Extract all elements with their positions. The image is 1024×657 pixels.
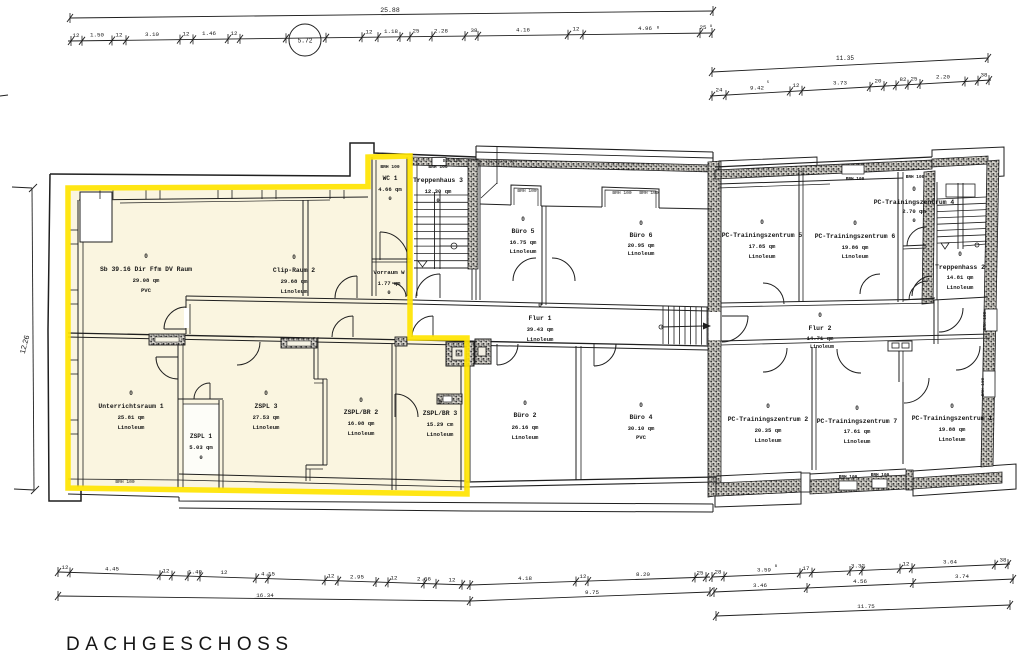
svg-text:12: 12 <box>903 561 910 568</box>
svg-text:Linoleum: Linoleum <box>628 250 655 257</box>
svg-text:Linoleum: Linoleum <box>348 430 375 437</box>
svg-text:16.75 qm: 16.75 qm <box>510 239 537 246</box>
svg-text:15.29 cm: 15.29 cm <box>427 421 454 428</box>
svg-text:0: 0 <box>639 402 643 409</box>
svg-text:0: 0 <box>639 220 643 227</box>
svg-text:0: 0 <box>438 399 442 406</box>
svg-text:39.43 qm: 39.43 qm <box>527 326 554 333</box>
svg-text:4.45: 4.45 <box>105 566 119 573</box>
svg-text:Linoleum: Linoleum <box>281 288 308 295</box>
svg-text:Linoleum: Linoleum <box>118 424 145 431</box>
svg-text:Linoleum: Linoleum <box>939 436 966 443</box>
svg-text:WC 1: WC 1 <box>383 175 398 182</box>
svg-text:19.88 qm: 19.88 qm <box>939 426 966 433</box>
svg-text:82: 82 <box>900 76 907 83</box>
svg-text:BRH 100: BRH 100 <box>871 473 890 478</box>
svg-text:12: 12 <box>449 576 456 583</box>
svg-text:Vorraum W: Vorraum W <box>373 269 405 276</box>
svg-text:38: 38 <box>981 71 988 78</box>
svg-text:0: 0 <box>950 403 954 410</box>
svg-text:2.66: 2.66 <box>417 576 431 583</box>
svg-text:2.28: 2.28 <box>434 27 448 34</box>
svg-text:4.18: 4.18 <box>518 575 532 582</box>
svg-text:12: 12 <box>328 573 335 580</box>
svg-text:12: 12 <box>62 564 69 571</box>
svg-text:Linoleum: Linoleum <box>253 424 280 431</box>
svg-text:12.30 qm: 12.30 qm <box>425 188 452 195</box>
svg-text:1.77 qm: 1.77 qm <box>378 281 401 287</box>
svg-text:Büro 2: Büro 2 <box>513 412 536 419</box>
svg-text:17: 17 <box>803 565 810 572</box>
svg-text:0: 0 <box>523 400 527 407</box>
svg-text:5.72: 5.72 <box>298 38 313 45</box>
svg-text:BRH 100: BRH 100 <box>612 190 632 196</box>
svg-text:4.66 qm: 4.66 qm <box>378 186 402 193</box>
svg-text:12: 12 <box>73 32 80 39</box>
svg-text:0: 0 <box>855 405 859 412</box>
svg-text:3.32: 3.32 <box>851 563 865 570</box>
svg-text:BRH 100: BRH 100 <box>981 377 986 396</box>
svg-text:ZSPL 1: ZSPL 1 <box>190 433 213 440</box>
svg-text:2.20: 2.20 <box>936 74 950 81</box>
svg-text:4.16: 4.16 <box>516 26 530 33</box>
svg-text:12: 12 <box>231 30 238 37</box>
svg-text:16.34: 16.34 <box>256 592 274 599</box>
svg-text:25: 25 <box>911 75 918 82</box>
svg-text:BRH 100: BRH 100 <box>846 177 865 182</box>
svg-text:BRH 100: BRH 100 <box>639 190 659 196</box>
svg-text:PVC: PVC <box>636 434 647 441</box>
svg-text:17.85 qm: 17.85 qm <box>749 243 776 250</box>
svg-text:0: 0 <box>853 220 857 227</box>
svg-text:0: 0 <box>129 390 133 397</box>
svg-text:29.68 qm: 29.68 qm <box>281 278 308 285</box>
svg-text:PC-Trainingszentrum 5: PC-Trainingszentrum 5 <box>722 232 803 239</box>
svg-text:0: 0 <box>264 390 268 397</box>
svg-text:38: 38 <box>471 27 478 34</box>
svg-text:BRH 100: BRH 100 <box>115 479 135 485</box>
svg-text:25: 25 <box>697 569 704 576</box>
svg-text:150/98/03-76: 150/98/03-76 <box>486 160 515 165</box>
svg-text:0: 0 <box>521 216 525 223</box>
svg-text:Linoleum: Linoleum <box>427 431 454 438</box>
svg-text:5.03 qm: 5.03 qm <box>189 444 213 451</box>
svg-text:29.08 qm: 29.08 qm <box>133 277 160 284</box>
svg-text:PC-Trainingszentrum 1: PC-Trainingszentrum 1 <box>912 415 993 422</box>
svg-text:27.53 qm: 27.53 qm <box>253 414 280 421</box>
svg-text:Treppenhass 2: Treppenhass 2 <box>935 264 985 271</box>
svg-text:12: 12 <box>221 569 228 576</box>
svg-text:12: 12 <box>391 575 398 582</box>
svg-text:BRH 100: BRH 100 <box>428 164 448 170</box>
svg-text:Linoleum: Linoleum <box>749 253 776 260</box>
svg-text:0: 0 <box>538 302 542 309</box>
svg-text:8.20: 8.20 <box>636 571 650 578</box>
svg-text:Linoleum: Linoleum <box>755 437 782 444</box>
svg-text:1.46: 1.46 <box>202 30 216 37</box>
svg-text:0: 0 <box>958 251 962 258</box>
svg-text:0: 0 <box>766 403 770 410</box>
svg-text:PVC: PVC <box>141 287 152 294</box>
svg-text:0: 0 <box>387 290 390 296</box>
svg-text:9.42: 9.42 <box>750 84 764 91</box>
svg-text:PC-Trainingszentrum 7: PC-Trainingszentrum 7 <box>817 418 898 425</box>
svg-text:14.81 qm: 14.81 qm <box>947 274 974 281</box>
svg-text:25.81 qm: 25.81 qm <box>118 414 145 421</box>
svg-text:2.70 qm: 2.70 qm <box>902 208 926 215</box>
svg-text:3.46: 3.46 <box>753 582 767 589</box>
svg-text:9.75: 9.75 <box>585 589 599 596</box>
svg-text:0: 0 <box>818 312 822 319</box>
svg-text:4.15: 4.15 <box>261 571 275 578</box>
svg-text:Linoleum: Linoleum <box>842 253 869 260</box>
svg-text:DACHGESCHOSS: DACHGESCHOSS <box>66 634 294 655</box>
svg-text:24: 24 <box>716 87 723 94</box>
svg-text:Büro 6: Büro 6 <box>629 232 652 239</box>
svg-text:PC-Trainingszentrum 2: PC-Trainingszentrum 2 <box>728 416 809 423</box>
svg-text:12: 12 <box>116 31 123 38</box>
svg-text:14.71 qm: 14.71 qm <box>807 335 834 342</box>
svg-text:0: 0 <box>912 186 916 193</box>
svg-text:Flur 1: Flur 1 <box>528 315 551 322</box>
svg-text:12: 12 <box>580 573 587 580</box>
svg-text:Unterrichtsraum 1: Unterrichtsraum 1 <box>98 403 163 410</box>
svg-text:BRH 100: BRH 100 <box>443 159 462 164</box>
svg-text:PC-Trainingszentrum 6: PC-Trainingszentrum 6 <box>815 233 896 240</box>
svg-text:Treppenhaus 3: Treppenhaus 3 <box>413 177 463 184</box>
svg-text:0: 0 <box>292 254 296 261</box>
svg-text:25.88: 25.88 <box>380 7 400 14</box>
svg-text:ZSPL/BR 2: ZSPL/BR 2 <box>344 409 379 416</box>
svg-text:12: 12 <box>366 28 373 35</box>
svg-text:20: 20 <box>875 77 882 84</box>
svg-text:4.96: 4.96 <box>638 25 652 32</box>
svg-text:Clip-Raum 2: Clip-Raum 2 <box>273 267 315 274</box>
svg-text:12: 12 <box>163 567 170 574</box>
svg-text:11.75: 11.75 <box>857 603 875 610</box>
svg-text:Büro 4: Büro 4 <box>629 414 652 421</box>
svg-text:Sb 39.16 Dir Ffm DV Raum: Sb 39.16 Dir Ffm DV Raum <box>100 266 192 273</box>
svg-text:3.59: 3.59 <box>757 567 771 574</box>
svg-text:1.50: 1.50 <box>90 32 104 39</box>
svg-text:25: 25 <box>700 24 707 31</box>
svg-text:20.95 qm: 20.95 qm <box>628 242 655 249</box>
svg-text:1.18: 1.18 <box>384 28 398 35</box>
svg-text:3.74: 3.74 <box>955 573 969 580</box>
svg-text:12: 12 <box>793 82 800 89</box>
svg-text:12: 12 <box>183 31 190 38</box>
svg-text:Linoleum: Linoleum <box>844 438 871 445</box>
svg-text:Büro 5: Büro 5 <box>511 228 534 235</box>
svg-text:20.35 qm: 20.35 qm <box>755 427 782 434</box>
svg-text:38: 38 <box>1000 556 1007 563</box>
svg-text:3.73: 3.73 <box>833 80 847 87</box>
svg-text:12: 12 <box>573 26 580 33</box>
svg-text:16.08 qm: 16.08 qm <box>348 420 375 427</box>
svg-text:BRH 100: BRH 100 <box>380 164 400 170</box>
svg-text:17.61 qm: 17.61 qm <box>844 428 871 435</box>
svg-text:Linoleum: Linoleum <box>510 248 537 255</box>
svg-text:11.35: 11.35 <box>836 55 854 62</box>
svg-text:Linoleum: Linoleum <box>527 336 554 343</box>
svg-text:4.56: 4.56 <box>853 578 867 585</box>
svg-text:Flur 2: Flur 2 <box>808 325 831 332</box>
svg-text:26.16 qm: 26.16 qm <box>512 424 539 431</box>
svg-text:BRH 100: BRH 100 <box>906 175 925 180</box>
svg-text:0: 0 <box>144 253 148 260</box>
svg-text:PC-Trainingszentrum 4: PC-Trainingszentrum 4 <box>874 199 955 206</box>
svg-text:BRH 100: BRH 100 <box>517 188 537 194</box>
svg-text:BRH 100: BRH 100 <box>983 311 988 330</box>
svg-text:2.95: 2.95 <box>350 573 364 580</box>
svg-text:30.10 qm: 30.10 qm <box>628 425 655 432</box>
svg-text:3.64: 3.64 <box>943 559 957 566</box>
svg-text:1.49: 1.49 <box>188 568 202 575</box>
svg-text:19.86 qm: 19.86 qm <box>842 244 869 251</box>
svg-text:Linoleum: Linoleum <box>512 434 539 441</box>
svg-text:ZSPL 3: ZSPL 3 <box>254 403 277 410</box>
svg-text:ZSPL/BR 3: ZSPL/BR 3 <box>423 410 458 417</box>
svg-text:Linoleum: Linoleum <box>810 344 834 350</box>
svg-text:25: 25 <box>413 28 420 35</box>
svg-text:3.10: 3.10 <box>145 31 159 38</box>
svg-text:Linoleum: Linoleum <box>947 284 974 291</box>
svg-text:0: 0 <box>359 397 363 404</box>
svg-text:28: 28 <box>715 569 722 576</box>
svg-text:BRH 100: BRH 100 <box>839 475 858 480</box>
svg-text:0: 0 <box>760 219 764 226</box>
